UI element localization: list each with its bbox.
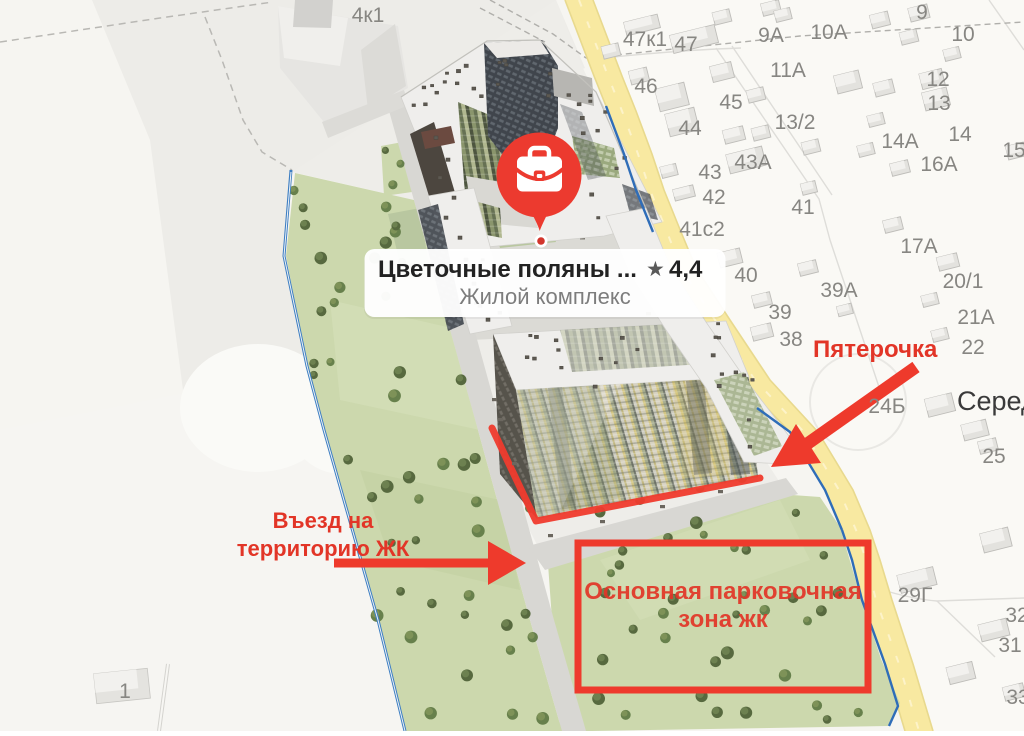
svg-text:25: 25 — [982, 445, 1005, 468]
svg-text:13/2: 13/2 — [775, 111, 816, 134]
svg-text:Цветочные поляны ...: Цветочные поляны ... — [378, 256, 637, 283]
svg-text:39: 39 — [768, 301, 791, 324]
svg-text:14А: 14А — [881, 130, 918, 153]
svg-text:10: 10 — [951, 23, 974, 46]
svg-text:территорию ЖК: территорию ЖК — [237, 536, 410, 561]
svg-text:44: 44 — [678, 117, 702, 140]
svg-text:16А: 16А — [920, 153, 957, 176]
svg-text:Въезд на: Въезд на — [273, 508, 374, 533]
svg-text:14: 14 — [948, 123, 972, 146]
svg-text:41: 41 — [791, 196, 814, 219]
svg-text:9: 9 — [916, 1, 928, 24]
svg-text:41с2: 41с2 — [679, 218, 725, 241]
svg-text:33: 33 — [1006, 686, 1024, 709]
svg-text:40: 40 — [734, 264, 757, 287]
svg-text:38: 38 — [779, 328, 802, 351]
svg-text:Основная парковочная: Основная парковочная — [584, 578, 862, 605]
svg-text:24Б: 24Б — [868, 395, 905, 418]
svg-text:9А: 9А — [758, 24, 784, 47]
svg-text:12: 12 — [926, 68, 949, 91]
svg-text:13: 13 — [927, 92, 950, 115]
svg-text:21А: 21А — [957, 306, 994, 329]
svg-text:20/1: 20/1 — [943, 270, 984, 293]
svg-text:45: 45 — [719, 91, 742, 114]
svg-text:42: 42 — [702, 186, 725, 209]
svg-text:22: 22 — [961, 336, 984, 359]
svg-text:43: 43 — [698, 161, 721, 184]
svg-text:1: 1 — [119, 680, 131, 703]
svg-text:31: 31 — [998, 634, 1021, 657]
svg-text:46: 46 — [634, 75, 657, 98]
svg-text:11А: 11А — [770, 59, 806, 82]
svg-text:4к1: 4к1 — [352, 4, 385, 27]
svg-text:★: ★ — [646, 258, 665, 281]
svg-text:Середа: Середа — [957, 386, 1024, 416]
svg-text:39А: 39А — [820, 279, 857, 302]
svg-text:29Г: 29Г — [898, 584, 933, 607]
svg-text:43А: 43А — [734, 151, 771, 174]
svg-text:4,4: 4,4 — [669, 256, 703, 283]
svg-text:10А: 10А — [810, 21, 847, 44]
svg-text:17А: 17А — [900, 235, 937, 258]
svg-text:Пятерочка: Пятерочка — [813, 336, 938, 363]
svg-text:47: 47 — [674, 33, 697, 56]
svg-text:47к1: 47к1 — [623, 28, 667, 51]
svg-text:32: 32 — [1005, 604, 1024, 627]
svg-text:15: 15 — [1002, 139, 1024, 162]
svg-text:Жилой комплекс: Жилой комплекс — [459, 284, 630, 309]
svg-text:зона жк: зона жк — [678, 606, 769, 633]
